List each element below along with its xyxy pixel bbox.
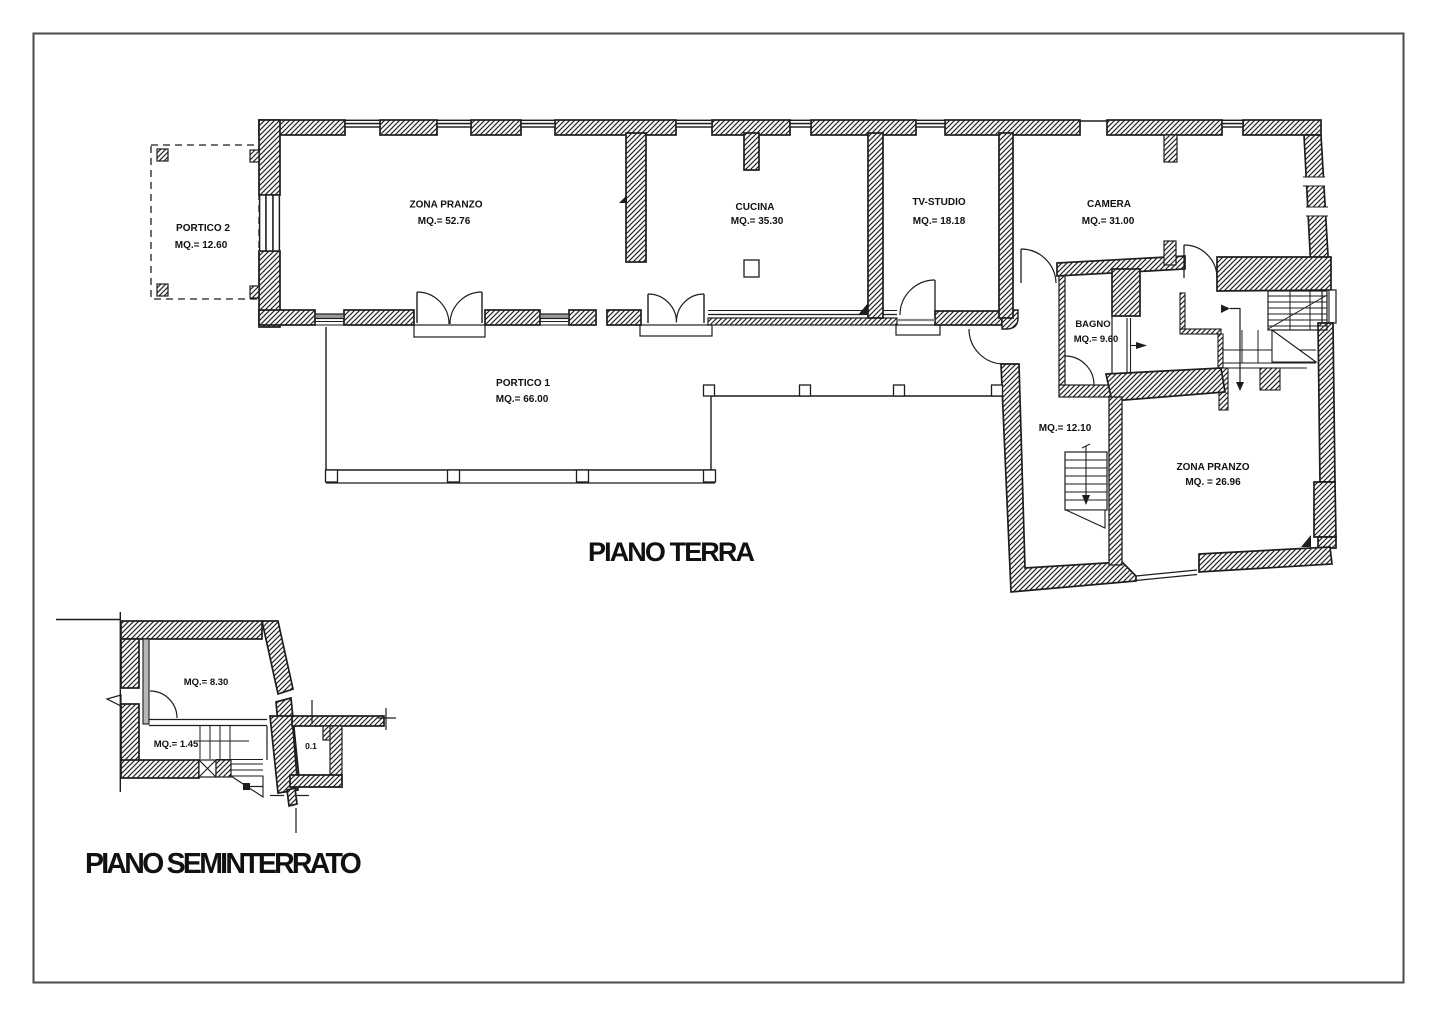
svg-text:0.1: 0.1: [305, 741, 317, 751]
svg-text:MQ. = 26.96: MQ. = 26.96: [1185, 477, 1241, 488]
svg-text:MQ.= 66.00: MQ.= 66.00: [496, 394, 549, 405]
svg-text:MQ.= 9.60: MQ.= 9.60: [1074, 334, 1119, 345]
svg-text:PORTICO 1: PORTICO 1: [496, 378, 550, 389]
svg-text:PORTICO 2: PORTICO 2: [176, 223, 230, 234]
svg-text:PIANO SEMINTERRATO: PIANO SEMINTERRATO: [85, 848, 361, 880]
svg-text:MQ.= 1.45: MQ.= 1.45: [154, 739, 199, 750]
svg-text:BAGNO: BAGNO: [1075, 319, 1110, 330]
svg-text:MQ.= 35.30: MQ.= 35.30: [731, 216, 784, 227]
svg-text:ZONA PRANZO: ZONA PRANZO: [410, 200, 483, 211]
svg-text:MQ.= 12.10: MQ.= 12.10: [1039, 423, 1092, 434]
svg-text:MQ.= 18.18: MQ.= 18.18: [913, 216, 966, 227]
svg-text:ZONA PRANZO: ZONA PRANZO: [1177, 462, 1250, 473]
svg-text:TV-STUDIO: TV-STUDIO: [912, 197, 966, 208]
svg-text:MQ.= 8.30: MQ.= 8.30: [184, 677, 229, 688]
svg-text:MQ.= 12.60: MQ.= 12.60: [175, 240, 228, 251]
svg-text:PIANO TERRA: PIANO TERRA: [588, 537, 755, 567]
svg-text:CAMERA: CAMERA: [1087, 199, 1131, 210]
svg-text:CUCINA: CUCINA: [736, 202, 775, 213]
svg-text:MQ.= 52.76: MQ.= 52.76: [418, 216, 471, 227]
svg-text:MQ.= 31.00: MQ.= 31.00: [1082, 216, 1135, 227]
